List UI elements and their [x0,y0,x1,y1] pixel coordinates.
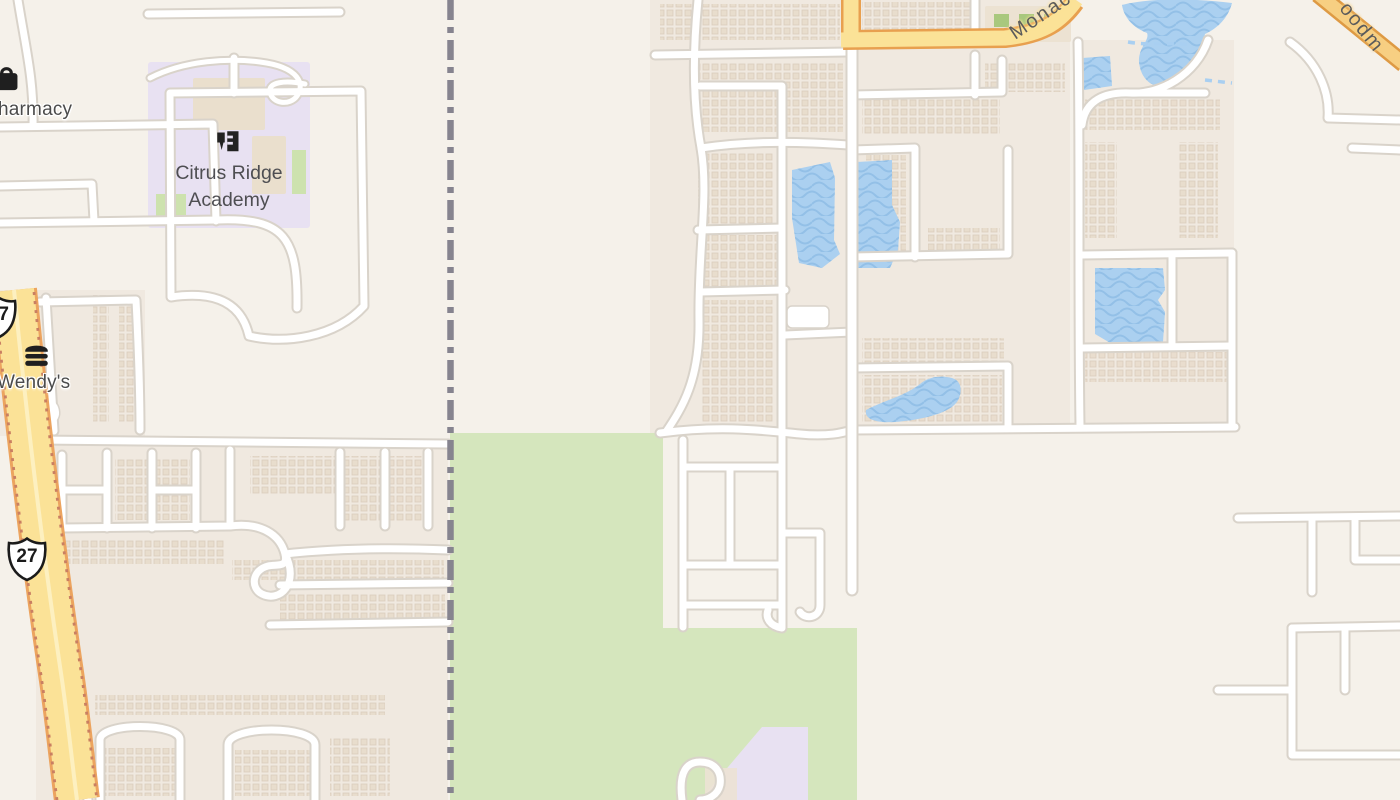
wendys-label[interactable]: Wendy's [0,372,70,394]
pond [792,162,840,268]
pharmacy-label[interactable]: harmacy [0,99,72,121]
academy-label-line2: Academy [148,187,310,214]
us27-shield-partial: 7 [0,294,18,340]
map-viewport[interactable]: harmacy Citrus Ridge Academy Wendy's 27 [0,0,1400,800]
pond [1082,56,1112,90]
shopping-bag-icon[interactable] [0,64,20,97]
map-canvas[interactable] [0,0,1400,800]
us27-shield-partial-number: 7 [0,304,18,326]
us27-shield-number: 27 [6,546,48,568]
academy-label[interactable]: Citrus Ridge Academy [148,160,310,214]
burger-icon[interactable] [23,341,50,372]
academy-label-line1: Citrus Ridge [148,160,310,187]
pond [1095,268,1165,344]
us27-shield: 27 [6,536,48,582]
school-icon[interactable] [216,130,241,160]
clubhouse-building [787,306,829,328]
